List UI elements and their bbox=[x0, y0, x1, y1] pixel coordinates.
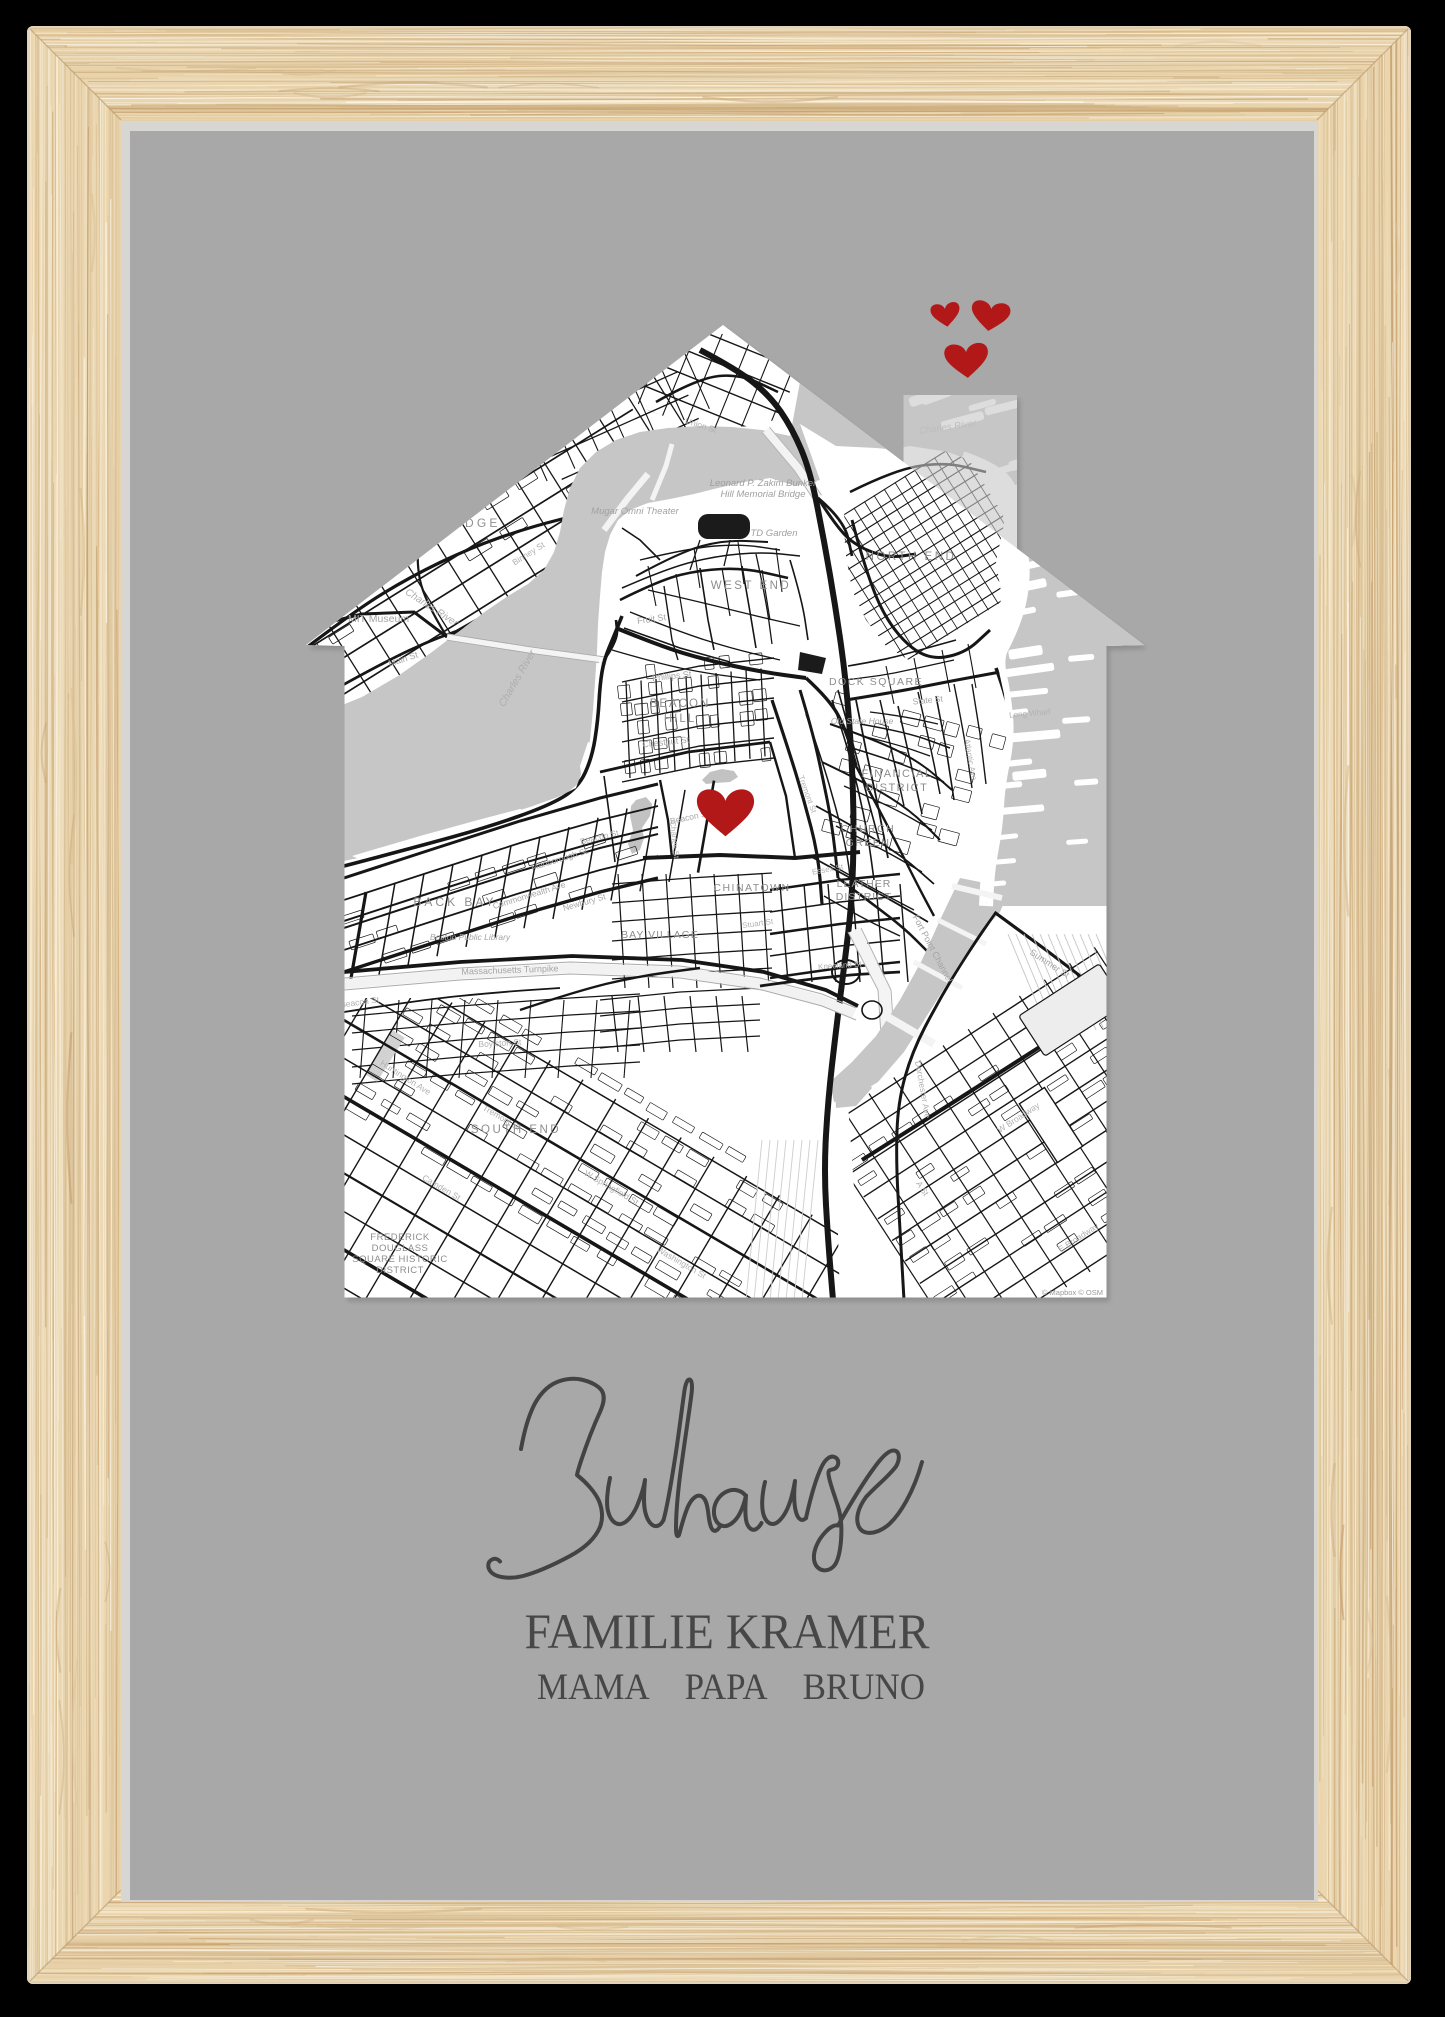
svg-text:MAMA PAPA BRUNO: MAMA PAPA BRUNO bbox=[537, 1667, 925, 1708]
svg-text:FAMILIE KRAMER: FAMILIE KRAMER bbox=[525, 1603, 931, 1659]
